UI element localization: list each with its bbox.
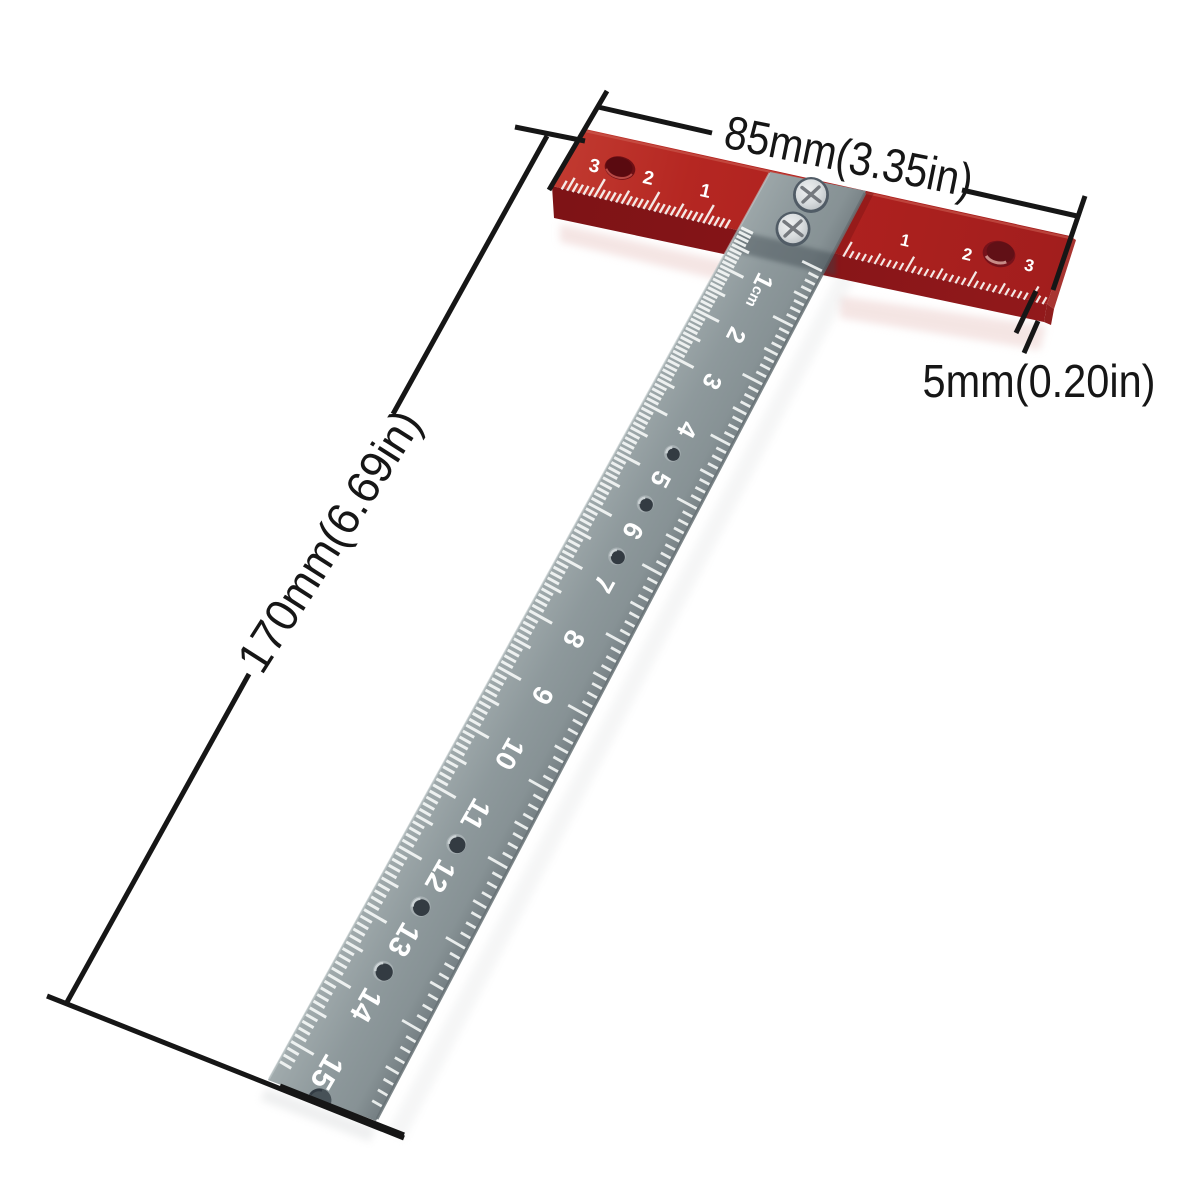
svg-text:5mm(0.20in): 5mm(0.20in) — [923, 355, 1156, 407]
